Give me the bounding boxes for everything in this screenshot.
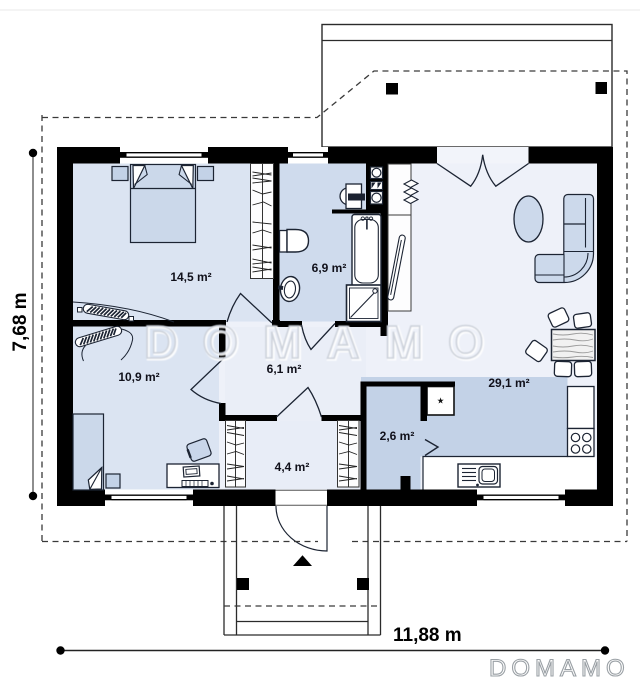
svg-text:6,1 m²: 6,1 m² — [267, 362, 302, 376]
svg-text:10,9 m²: 10,9 m² — [118, 370, 159, 384]
svg-text:4,4 m²: 4,4 m² — [275, 460, 310, 474]
svg-text:29,1 m²: 29,1 m² — [488, 376, 529, 390]
svg-text:★: ★ — [437, 396, 445, 406]
svg-text:11,88 m: 11,88 m — [393, 625, 462, 646]
svg-text:6,9 m²: 6,9 m² — [312, 261, 347, 275]
svg-text:DOMAMO: DOMAMO — [489, 655, 630, 682]
svg-text:2,6 m²: 2,6 m² — [380, 429, 415, 443]
svg-text:7,68 m: 7,68 m — [10, 292, 31, 351]
svg-text:DOMAMO: DOMAMO — [144, 316, 509, 368]
svg-text:14,5 m²: 14,5 m² — [170, 270, 211, 284]
